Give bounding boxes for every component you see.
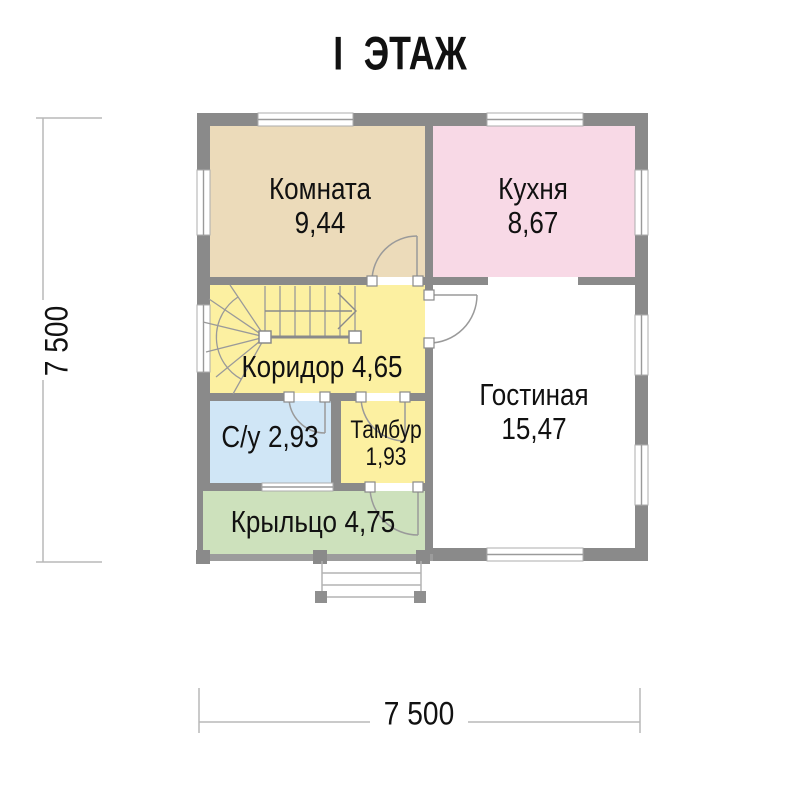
dimension-label-width: 7 500	[384, 696, 454, 733]
page-title: I ЭТАЖ	[333, 26, 467, 81]
wall-komnata-koridor-left	[210, 277, 372, 285]
room-label-koridor: Коридор 4,65	[241, 350, 402, 384]
step-post-right	[414, 591, 426, 603]
wall-su-krylco-left	[197, 483, 262, 491]
room-area-koridor: 4,65	[352, 350, 403, 384]
floor-plan-drawing	[0, 0, 800, 800]
step-post-left	[315, 591, 327, 603]
wall-krylco-right	[425, 490, 433, 548]
room-area-su: 2,93	[268, 420, 319, 454]
krylco-post-left	[196, 550, 210, 564]
wall-kuhnya-gostinaya	[578, 277, 635, 285]
room-label-su: С/у 2,93	[221, 420, 318, 454]
wall-komnata-kuhnya	[425, 126, 433, 285]
room-area-kuhnya: 8,67	[508, 206, 559, 240]
wall-su-tambur	[331, 401, 341, 483]
room-label-tambur: Тамбур 1,93	[350, 417, 421, 471]
room-name-su: С/у	[221, 420, 260, 454]
room-area-komnata: 9,44	[295, 206, 346, 240]
krylco-post-middle	[313, 550, 327, 564]
room-name-koridor: Коридор	[241, 350, 344, 384]
room-name-tambur: Тамбур	[350, 417, 421, 444]
room-name-komnata: Комната	[269, 172, 371, 206]
room-label-gostinaya: Гостиная 15,47	[479, 378, 588, 446]
room-area-krylco: 4,75	[345, 505, 396, 539]
room-name-gostinaya: Гостиная	[479, 378, 588, 412]
wall-komnata-koridor-right	[418, 277, 488, 285]
room-area-tambur: 1,93	[366, 444, 407, 471]
floor-plan-page: I ЭТАЖ Комната 9,44 Кухня 8,67 Коридор 4…	[0, 0, 800, 800]
entrance-steps	[315, 561, 426, 603]
room-area-gostinaya: 15,47	[501, 412, 566, 446]
room-label-komnata: Комната 9,44	[269, 172, 371, 240]
room-name-krylco: Крыльцо	[231, 505, 337, 539]
wall-koridor-su	[210, 393, 289, 401]
room-label-kuhnya: Кухня 8,67	[498, 172, 568, 240]
wall-koridor-gostinaya-bottom	[425, 343, 433, 490]
room-name-kuhnya: Кухня	[498, 172, 568, 206]
krylco-post-right	[416, 550, 430, 564]
room-label-krylco: Крыльцо 4,75	[231, 505, 395, 539]
step-lines	[322, 561, 421, 597]
dimension-label-height: 7 500	[39, 306, 76, 376]
